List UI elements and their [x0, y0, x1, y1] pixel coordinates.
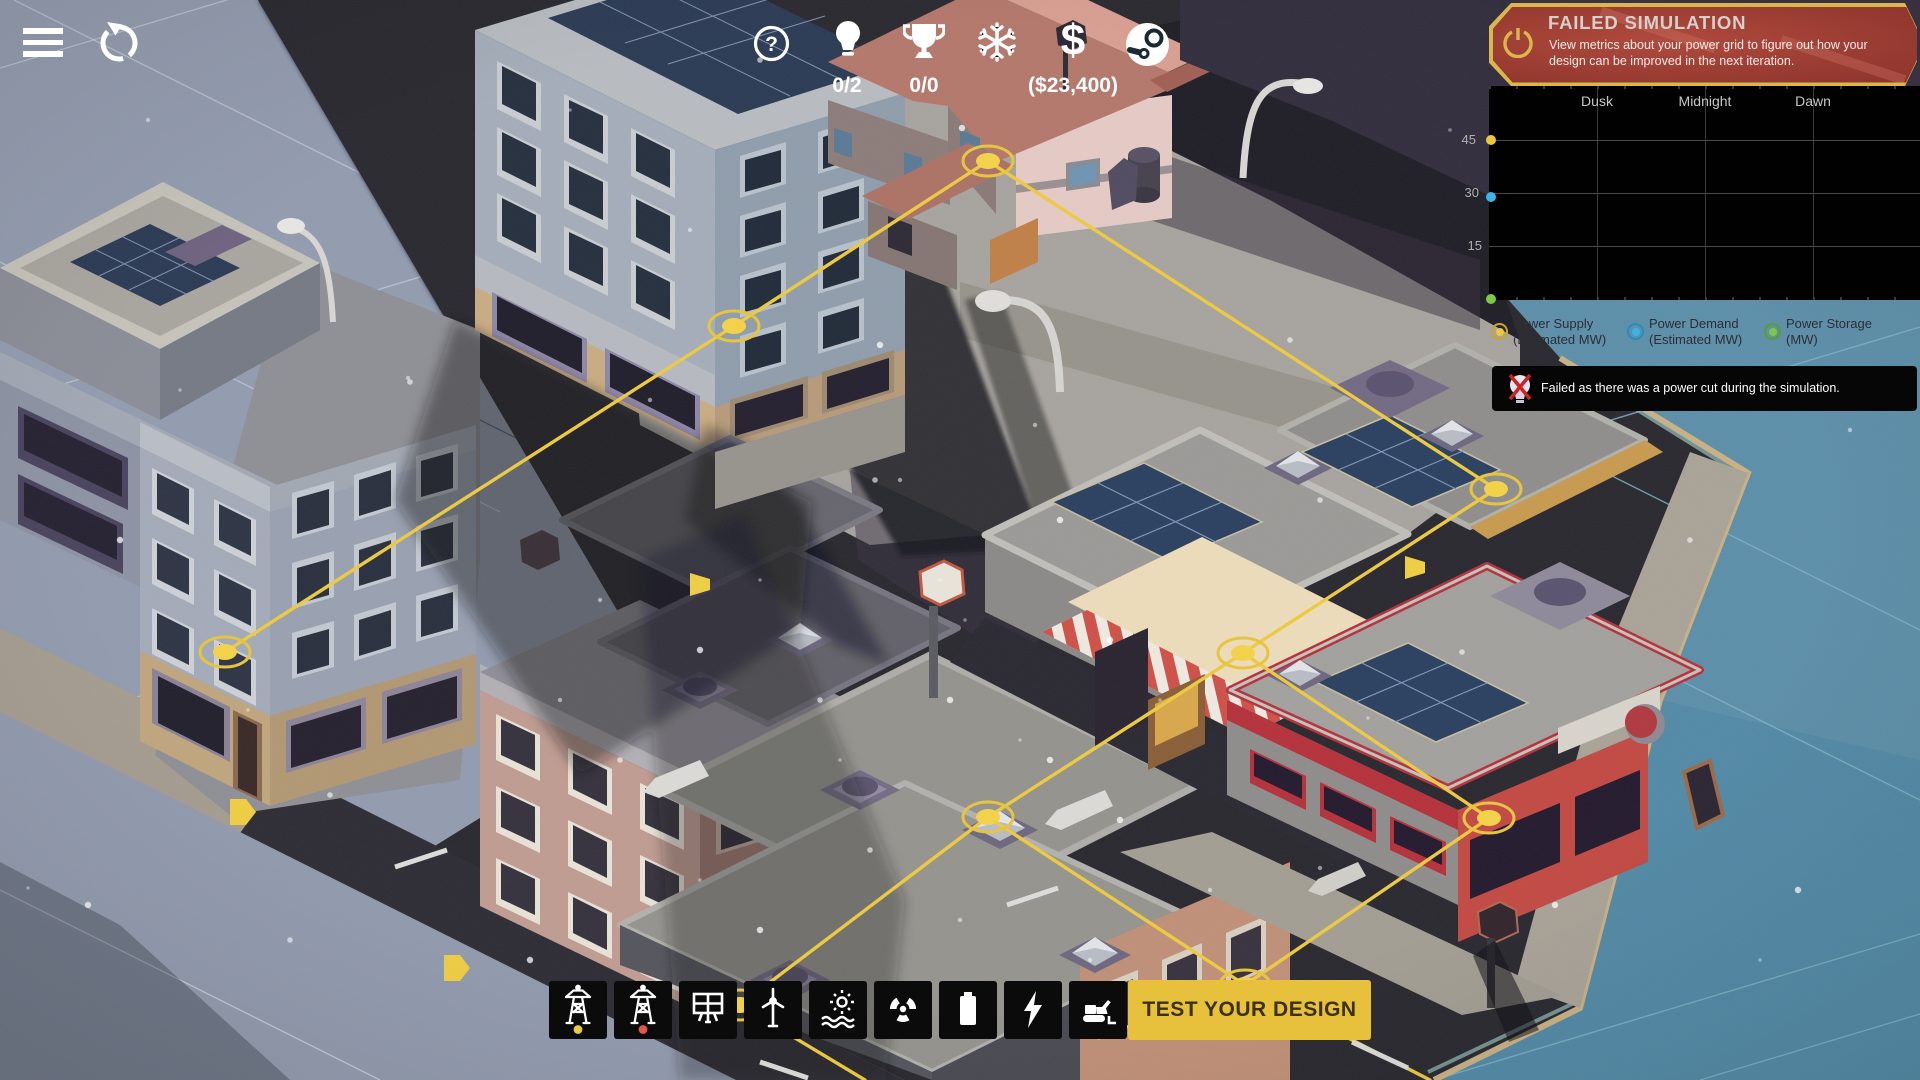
svg-text:?: ? [765, 33, 778, 56]
